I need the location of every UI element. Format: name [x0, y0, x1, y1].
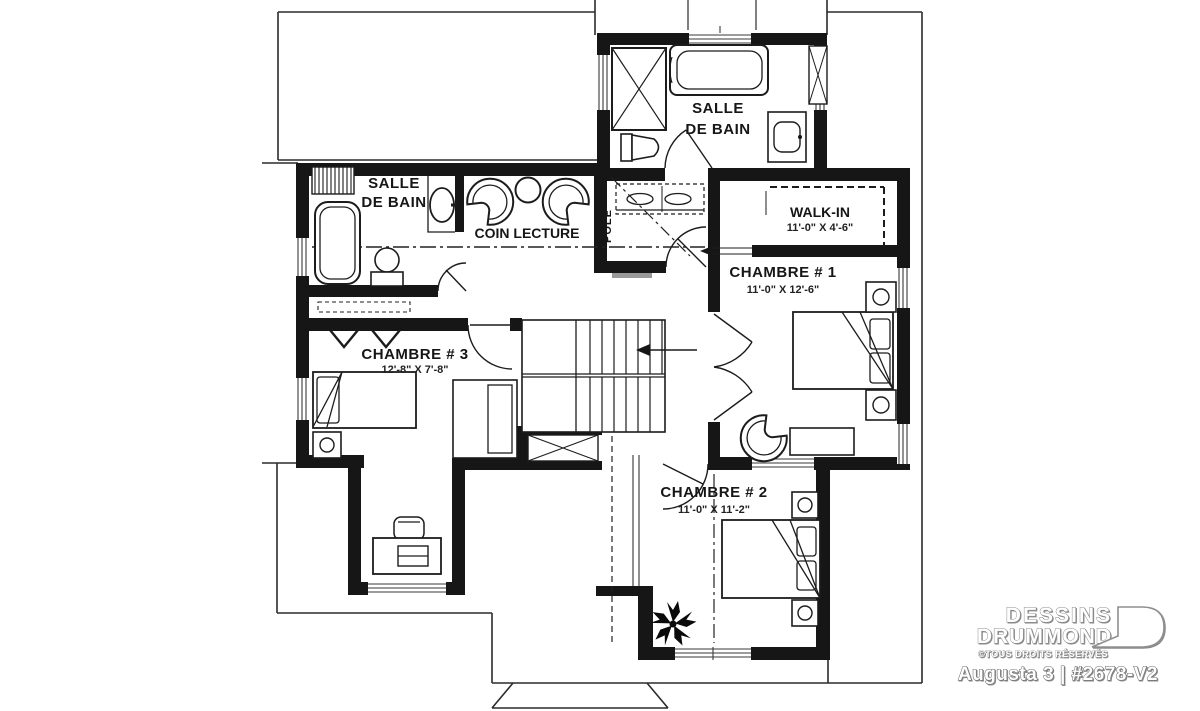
brand-name-line1: DESSINS	[1006, 604, 1112, 627]
nightstand-icon	[866, 390, 896, 420]
dresser-icon	[790, 428, 854, 455]
room-dims-chambre3: 12'-8" X 7'-8"	[381, 364, 448, 376]
armchair-icon	[461, 169, 523, 231]
sill	[612, 273, 652, 278]
door-bathroom-left	[438, 263, 466, 291]
room-label-chambre2: CHAMBRE # 2	[660, 484, 767, 501]
room-label-salle-de-bain-left-2: DE BAIN	[361, 194, 426, 211]
bed-icon	[313, 372, 416, 428]
bathtub-icon	[315, 202, 360, 284]
linen-closet-icon	[809, 46, 827, 104]
nightstand-icon	[313, 432, 341, 458]
pillow	[797, 527, 816, 556]
bathtub-icon	[670, 45, 768, 95]
nightstand-icon	[792, 600, 818, 626]
sink-vanity-icon	[768, 112, 806, 162]
stairs-icon	[522, 320, 697, 461]
room-dims-chambre2: 11'-0" X 11'-2"	[678, 504, 750, 516]
opening-walkin	[700, 247, 752, 255]
plan-title: Augusta 3 | #2678-V2	[958, 664, 1158, 685]
window-bedroom1-right-bottom	[897, 424, 910, 464]
stairwell-edge-lines	[633, 455, 639, 586]
desk-icon	[373, 538, 441, 574]
room-label-chambre1: CHAMBRE # 1	[729, 264, 836, 281]
desk-nook-furniture	[373, 517, 441, 574]
shower-icon	[612, 48, 666, 130]
under-stairs-storage	[528, 435, 598, 461]
window-bedroom3	[296, 378, 309, 420]
rights-notice: ©TOUS DROITS RÉSERVÉS	[978, 649, 1108, 659]
armchair-icon	[533, 169, 595, 231]
logo: DESSINS DRUMMOND ©TOUS DROITS RÉSERVÉS A…	[958, 604, 1164, 685]
room-label-chambre3: CHAMBRE # 3	[361, 346, 468, 363]
window-desk-nook	[368, 582, 446, 595]
room-label-salle-de-bain-top-1: SALLE	[692, 100, 744, 117]
door-bedroom3	[468, 325, 512, 369]
closet-chevrons	[330, 330, 400, 347]
toilet-icon	[621, 134, 659, 161]
room-dims-walkin: 11'-0" X 4'-6"	[787, 222, 853, 234]
room-label-walkin: WALK-IN	[790, 204, 850, 220]
toilet-icon	[371, 248, 403, 286]
dresser-icon	[453, 380, 517, 458]
brand-name-line2: DRUMMOND	[977, 625, 1112, 648]
plant-icon	[649, 601, 697, 647]
window-dormer-left	[597, 55, 610, 110]
floor-plan-page: SALLE DE BAIN SALLE DE BAIN COIN LECTURE…	[0, 0, 1200, 711]
centerline-closet	[612, 178, 690, 256]
room-label-salle-de-bain-top-2: DE BAIN	[685, 121, 750, 138]
attic-access-dashed	[318, 302, 410, 312]
window-bedroom1-right-top	[897, 268, 910, 308]
window-dormer-top	[689, 26, 751, 45]
pillow	[870, 319, 890, 349]
room-dims-chambre1: 11'-0" X 12'-6"	[747, 284, 820, 296]
nightstand-icon	[866, 282, 896, 312]
rod-support	[627, 194, 653, 205]
desk-chair-icon	[394, 517, 424, 540]
room-label-coin-lecture: COIN LECTURE	[475, 225, 580, 241]
sink-icon	[428, 176, 457, 232]
rod-support	[665, 194, 691, 205]
bed-icon	[793, 312, 893, 389]
linen-hatch-icon	[312, 167, 354, 194]
room-label-salle-de-bain-left-1: SALLE	[368, 175, 420, 192]
bedroom1-furniture	[731, 282, 896, 471]
window-left-bathroom	[296, 238, 309, 276]
reading-nook-furniture	[461, 169, 595, 231]
floor-plan: SALLE DE BAIN SALLE DE BAIN COIN LECTURE…	[0, 0, 1200, 711]
round-table-icon	[516, 178, 541, 203]
door-bedroom1-double	[714, 314, 752, 420]
bed-icon	[722, 520, 820, 598]
window-bedroom2-bottom	[675, 647, 751, 660]
nightstand-icon	[792, 492, 818, 518]
room-label-pole: PÔLE	[601, 209, 614, 243]
